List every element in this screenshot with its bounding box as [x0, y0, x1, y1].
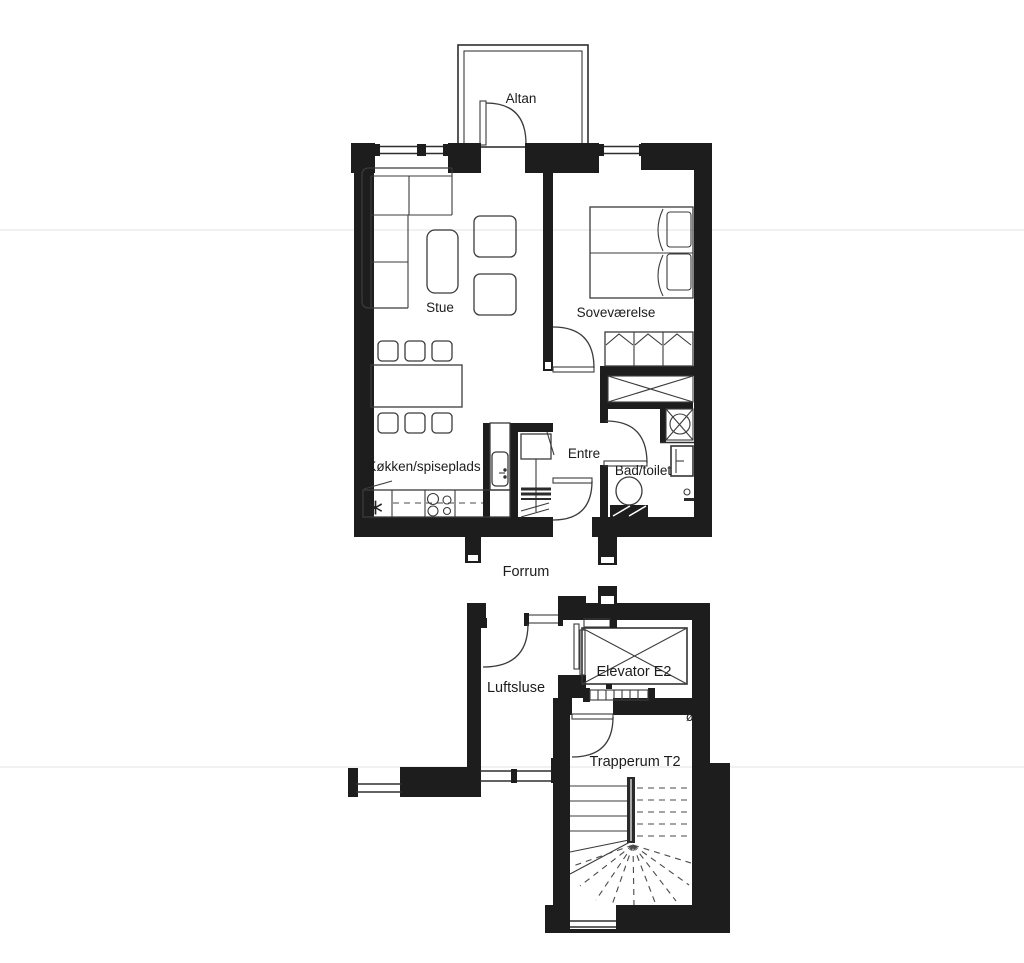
room-label-koekken: Køkken/spiseplads — [367, 459, 481, 474]
balcony-door — [480, 101, 526, 145]
bathroom-fitting — [684, 489, 694, 501]
toilet — [610, 477, 648, 517]
coffee-table — [427, 230, 458, 293]
luftsluse-door — [483, 613, 563, 667]
floor-plan-page: * — [0, 0, 1024, 963]
room-label-trapperum: Trapperum T2 — [589, 754, 680, 770]
room-label-forrum: Forrum — [503, 564, 550, 580]
bedroom-door — [553, 327, 594, 372]
room-label-bad: Bad/toilet — [615, 463, 672, 478]
floor-plan-drawing: * — [0, 0, 1024, 963]
installation-shaft — [608, 376, 693, 402]
entre-closet — [521, 432, 554, 517]
room-label-sovevaerelse: Soveværelse — [577, 305, 656, 320]
room-label-elevator: Elevator E2 — [597, 664, 672, 680]
room-label-altan: Altan — [506, 91, 537, 106]
window-stue — [375, 144, 448, 156]
sofa — [362, 168, 452, 308]
window-bedroom — [599, 144, 644, 156]
room-label-entre: Entre — [568, 446, 600, 461]
dining-set — [371, 341, 462, 433]
drain-symbol: ø — [686, 710, 693, 724]
bathroom-door — [604, 421, 647, 466]
kitchen-sink — [492, 452, 508, 486]
bathroom-sink — [671, 446, 693, 476]
staircase — [570, 777, 691, 905]
bedroom-wardrobe — [605, 332, 693, 366]
elevator — [574, 619, 687, 702]
double-bed — [590, 207, 693, 298]
stove — [428, 494, 452, 517]
entry-door — [553, 478, 592, 520]
room-label-stue: Stue — [426, 300, 454, 315]
stairwell-door — [572, 714, 613, 757]
room-label-luftsluse: Luftsluse — [487, 680, 545, 696]
cooker-symbol: * — [368, 496, 383, 531]
shower — [660, 409, 694, 443]
